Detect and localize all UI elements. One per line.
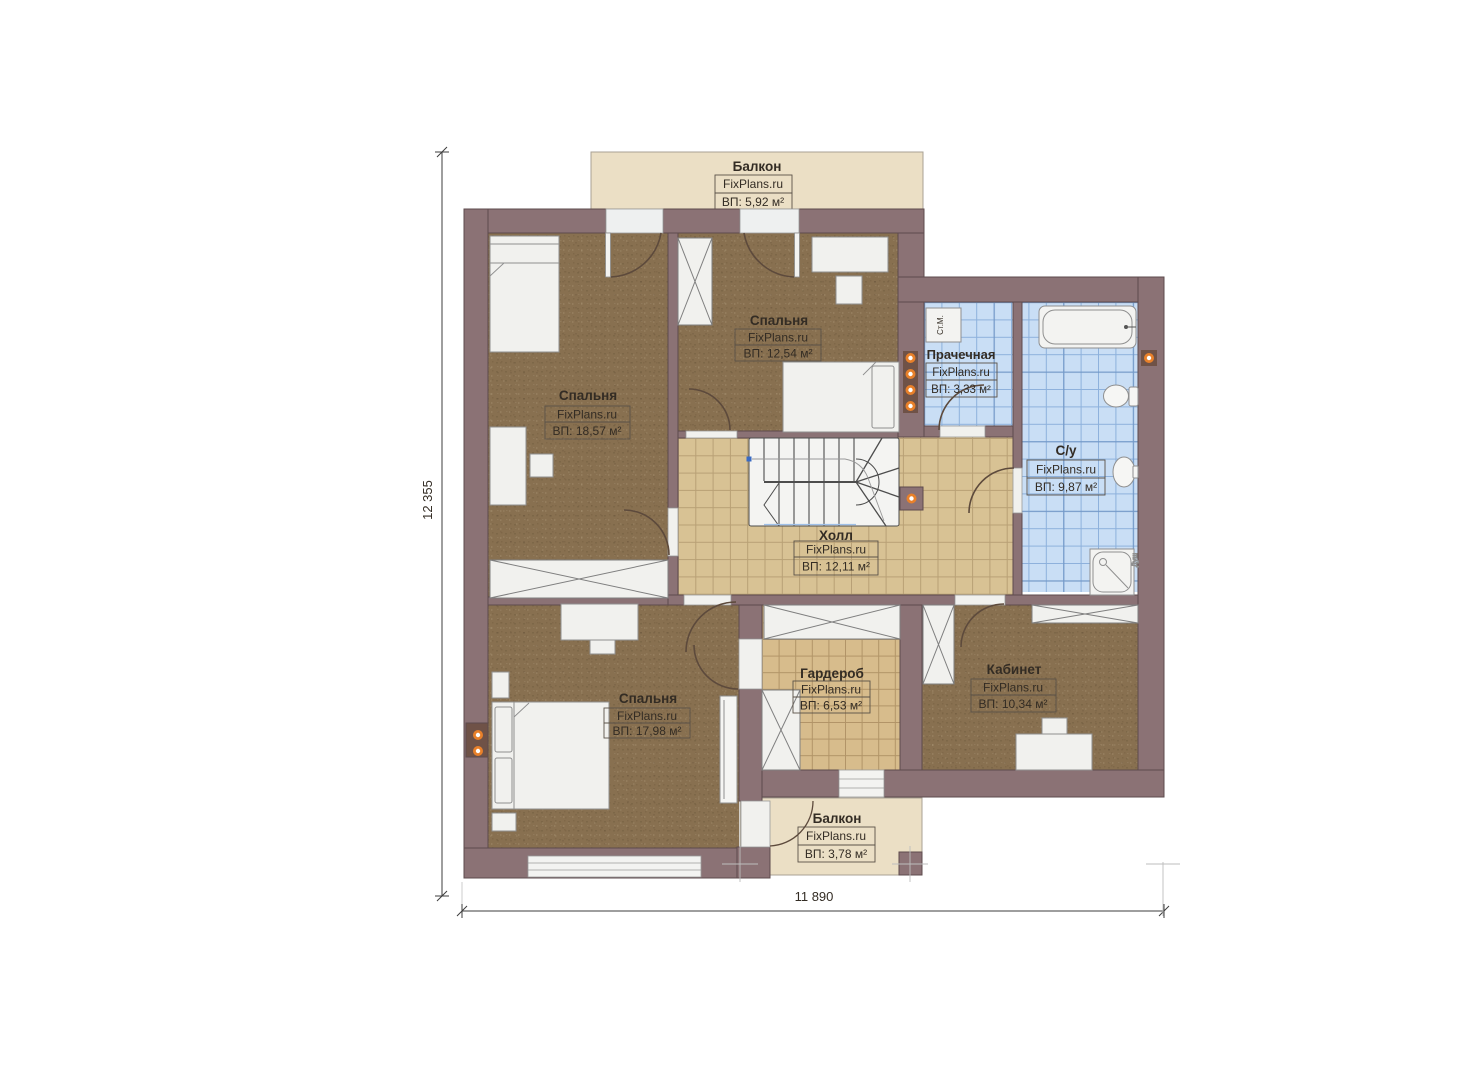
svg-text:Кабинет: Кабинет <box>987 662 1042 677</box>
svg-text:ВП: 3,78 м²: ВП: 3,78 м² <box>805 847 867 861</box>
svg-text:ВП: 12,11 м²: ВП: 12,11 м² <box>802 560 870 574</box>
svg-text:FixPlans.ru: FixPlans.ru <box>983 681 1043 695</box>
svg-text:11 890: 11 890 <box>795 889 834 904</box>
svg-text:Гардероб: Гардероб <box>800 666 864 681</box>
svg-text:Спальня: Спальня <box>559 388 617 403</box>
svg-text:Спальня: Спальня <box>750 313 808 328</box>
svg-text:FixPlans.ru: FixPlans.ru <box>723 177 783 191</box>
svg-text:FixPlans.ru: FixPlans.ru <box>1036 463 1096 477</box>
svg-text:FixPlans.ru: FixPlans.ru <box>801 683 861 697</box>
svg-text:ВП: 17,98 м²: ВП: 17,98 м² <box>613 724 682 738</box>
svg-text:ВП: 9,87 м²: ВП: 9,87 м² <box>1035 480 1097 494</box>
svg-text:FixPlans.ru: FixPlans.ru <box>557 408 617 422</box>
svg-text:ВП: 18,57 м²: ВП: 18,57 м² <box>553 424 622 438</box>
svg-text:FixPlans.ru: FixPlans.ru <box>932 367 990 379</box>
svg-text:Душ: Душ <box>1132 553 1139 567</box>
svg-text:ВП: 3,33 м²: ВП: 3,33 м² <box>931 384 991 396</box>
svg-text:Балкон: Балкон <box>733 159 782 174</box>
svg-text:Прачечная: Прачечная <box>927 347 996 362</box>
svg-text:ВП: 10,34 м²: ВП: 10,34 м² <box>979 697 1048 711</box>
svg-text:FixPlans.ru: FixPlans.ru <box>806 829 866 843</box>
svg-text:Спальня: Спальня <box>619 691 677 706</box>
svg-text:Балкон: Балкон <box>813 811 862 826</box>
svg-text:FixPlans.ru: FixPlans.ru <box>806 543 866 557</box>
svg-text:С/у: С/у <box>1055 443 1077 458</box>
svg-text:ВП: 12,54 м²: ВП: 12,54 м² <box>744 347 813 361</box>
svg-text:FixPlans.ru: FixPlans.ru <box>617 709 677 723</box>
svg-text:12 355: 12 355 <box>420 480 435 520</box>
svg-text:FixPlans.ru: FixPlans.ru <box>748 331 808 345</box>
svg-text:ВП: 6,53 м²: ВП: 6,53 м² <box>800 699 862 713</box>
svg-text:Ст.М.: Ст.М. <box>936 315 945 335</box>
svg-text:ВП: 5,92 м²: ВП: 5,92 м² <box>722 195 784 209</box>
